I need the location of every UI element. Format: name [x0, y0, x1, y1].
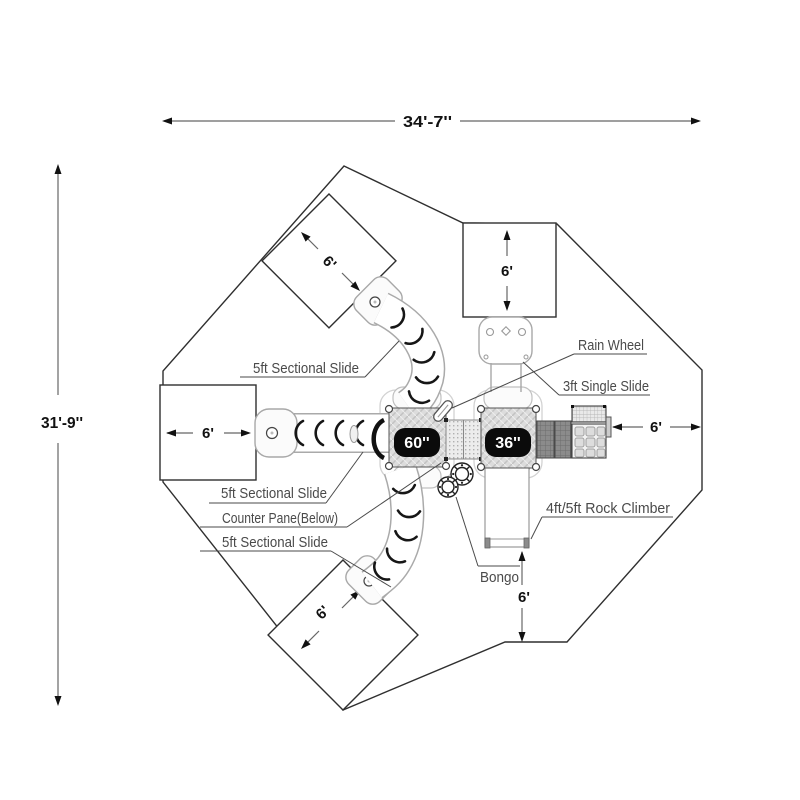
transfer-bridge [444, 418, 483, 461]
rain-wheel-label: Rain Wheel [578, 338, 644, 354]
deck-36-height: 36'' [495, 435, 520, 452]
sectional-slide-w [255, 409, 389, 457]
top-width-dimension: 34'-7'' [162, 114, 701, 131]
rock-climber-footprint [485, 461, 529, 548]
slide-ne-label: 5ft Sectional Slide [253, 361, 359, 377]
right-clearance-dim: 6' [650, 419, 662, 436]
arrowhead-down [55, 696, 62, 706]
left-height-dimension: 31'-9'' [41, 164, 83, 706]
overall-height-text: 31'-9'' [41, 415, 83, 432]
overall-width-text: 34'-7'' [403, 114, 452, 131]
arrowhead-up [55, 164, 62, 174]
bottom-clearance-dim: 6' [518, 589, 530, 606]
deck-36: 36'' [478, 406, 540, 471]
deck-60-height: 60'' [404, 435, 429, 452]
playground-plan-diagram: 34'-7'' 31'-9'' 6' 6' 6' [0, 0, 800, 800]
arrowhead-left [162, 118, 172, 125]
slide-sw-label: 5ft Sectional Slide [222, 535, 328, 551]
rock-climber-label: 4ft/5ft Rock Climber [546, 501, 670, 517]
single-slide-label: 3ft Single Slide [563, 379, 649, 395]
counter-pane-label: Counter Pane(Below) [222, 511, 338, 527]
bongo-label: Bongo [480, 570, 519, 586]
slide-w-label: 5ft Sectional Slide [221, 486, 327, 502]
plan-svg: 34'-7'' 31'-9'' 6' 6' 6' [0, 0, 800, 800]
top-square-dim: 6' [501, 263, 513, 280]
left-clearance-square: 6' [160, 385, 256, 480]
left-square-dim: 6' [202, 425, 214, 442]
arrowhead-right [691, 118, 701, 125]
top-clearance-square: 6' [463, 223, 556, 317]
